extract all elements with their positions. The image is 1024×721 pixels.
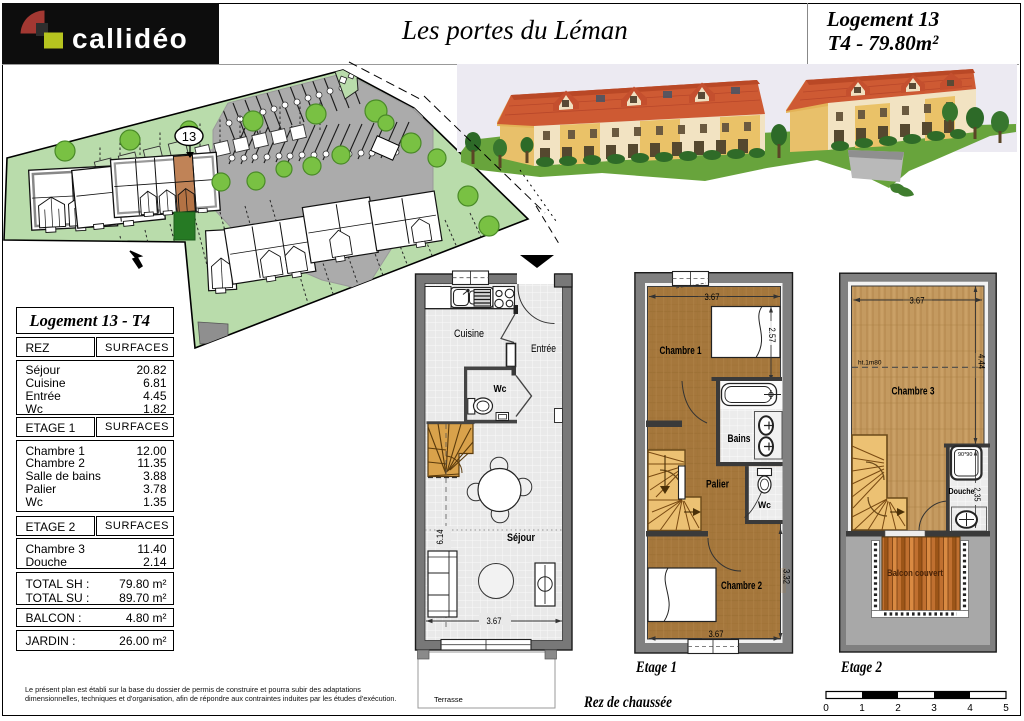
svg-text:ht.1m80: ht.1m80: [858, 360, 882, 367]
svg-text:Rez de chaussée: Rez de chaussée: [583, 694, 672, 711]
svg-text:Bains: Bains: [728, 433, 751, 445]
svg-text:90*90: 90*90: [958, 452, 972, 458]
svg-text:Wc: Wc: [758, 500, 771, 511]
svg-text:5: 5: [1003, 703, 1009, 714]
svg-text:Etage 1: Etage 1: [635, 659, 677, 676]
svg-text:Etage 2: Etage 2: [840, 659, 882, 676]
svg-text:6.14: 6.14: [435, 530, 446, 545]
svg-text:Cuisine: Cuisine: [454, 328, 484, 340]
svg-text:3.67: 3.67: [705, 292, 720, 303]
svg-text:3.32: 3.32: [782, 569, 792, 584]
svg-text:4.44: 4.44: [977, 354, 987, 369]
svg-text:Wc: Wc: [494, 384, 507, 395]
svg-text:Chambre 1: Chambre 1: [660, 345, 702, 357]
svg-text:Chambre 2: Chambre 2: [721, 580, 762, 592]
svg-text:Séjour: Séjour: [507, 532, 536, 544]
svg-text:1: 1: [859, 703, 865, 714]
svg-text:Chambre 3: Chambre 3: [892, 386, 935, 398]
svg-text:3.67: 3.67: [487, 616, 502, 627]
svg-text:0: 0: [823, 703, 829, 714]
svg-text:2: 2: [895, 703, 901, 714]
svg-text:Palier: Palier: [706, 479, 730, 491]
svg-text:4: 4: [967, 703, 973, 714]
svg-text:Entrée: Entrée: [531, 343, 556, 355]
svg-text:3.67: 3.67: [910, 296, 925, 307]
svg-text:Douche: Douche: [949, 486, 975, 496]
svg-text:2.57: 2.57: [767, 328, 777, 343]
svg-text:Balcon couvert: Balcon couvert: [887, 568, 944, 579]
svg-text:3.67: 3.67: [709, 629, 724, 640]
svg-text:3: 3: [931, 703, 937, 714]
